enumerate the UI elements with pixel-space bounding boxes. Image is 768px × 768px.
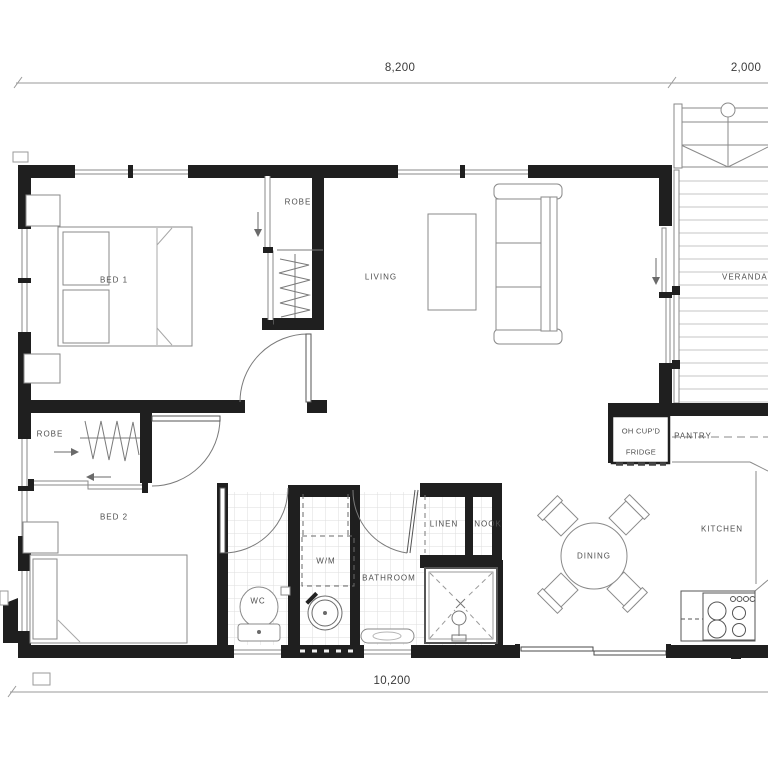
bedside-table — [23, 522, 58, 553]
arrow-down-icon — [652, 258, 660, 285]
room-label-pantry: PANTRY — [674, 432, 712, 441]
robe2-hangers — [85, 421, 139, 461]
arrow-down-icon — [254, 212, 262, 237]
room-label-bed1: BED 1 — [100, 276, 128, 285]
floor-plan-drawing — [0, 0, 768, 768]
coffee-table — [428, 214, 476, 310]
sliding-door-veranda — [659, 219, 672, 370]
room-label-kitchen: KITCHEN — [701, 525, 743, 534]
pillow — [33, 559, 57, 639]
room-label-bathroom: BATHROOM — [362, 574, 416, 583]
room-label-linen: LINEN — [430, 520, 459, 529]
vanity — [361, 629, 414, 643]
arrow-left-icon — [86, 473, 111, 481]
room-label-wc: WC — [250, 597, 265, 606]
label-overhead-cupboard: OH CUP'D — [622, 427, 660, 436]
door-bed1 — [240, 334, 311, 402]
toilet-roll-holder — [281, 587, 290, 595]
room-label-living: LIVING — [365, 273, 397, 282]
room-label-dining: DINING — [577, 552, 611, 561]
shower — [425, 568, 497, 643]
dimension-top-main: 8,200 — [385, 62, 415, 74]
arrow-right-icon — [54, 448, 79, 456]
fridge-box — [612, 416, 669, 464]
room-label-verandah: VERANDAH — [722, 273, 768, 282]
window-bed2-left — [18, 566, 31, 636]
pillow — [63, 290, 109, 343]
window-bathroom-bottom — [359, 645, 416, 658]
bedside-table — [26, 195, 60, 226]
cooktop — [681, 591, 755, 641]
living-furniture — [428, 184, 660, 344]
bed1-furniture — [24, 195, 192, 383]
toilet-bowl — [240, 587, 278, 627]
window-living-top — [393, 165, 533, 178]
sofa — [494, 184, 562, 344]
room-label-bed2: BED 2 — [100, 513, 128, 522]
pantry-bench — [672, 437, 768, 591]
bedside-table — [24, 354, 60, 383]
room-label-robe1: ROBE — [285, 198, 312, 207]
shower-rose — [452, 611, 466, 625]
window-wc-bottom — [229, 645, 286, 658]
label-fridge: FRIDGE — [626, 448, 656, 457]
floor-plan-canvas: 8,200 2,000 10,200 BED 1 ROBE LIVING VER… — [0, 0, 768, 768]
veranda-deck — [670, 103, 768, 403]
window-bed1-top — [70, 165, 193, 178]
sliding-door-dining — [515, 644, 671, 658]
room-label-wm: W/M — [316, 557, 335, 566]
room-label-nook: NOOK — [474, 520, 502, 529]
bed2-furniture — [23, 522, 187, 643]
dimension-bottom-total: 10,200 — [374, 675, 411, 687]
dimension-top-veranda: 2,000 — [731, 62, 761, 74]
window-bed1-left — [18, 224, 31, 337]
door-bed2 — [152, 416, 220, 486]
room-label-robe2: ROBE — [37, 430, 64, 439]
